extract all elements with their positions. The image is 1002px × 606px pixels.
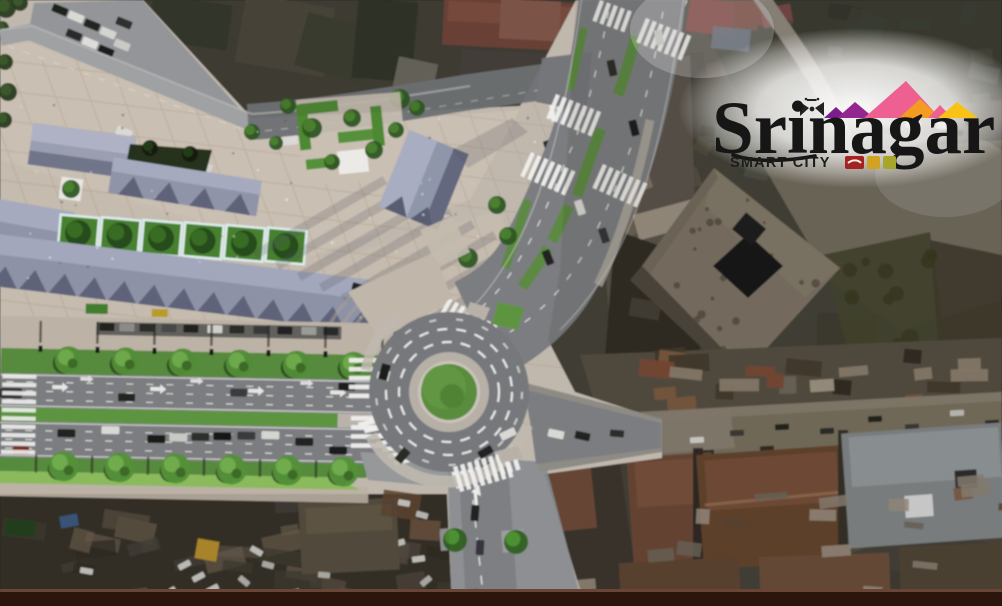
svg-text:SMART CITY: SMART CITY xyxy=(730,155,831,171)
